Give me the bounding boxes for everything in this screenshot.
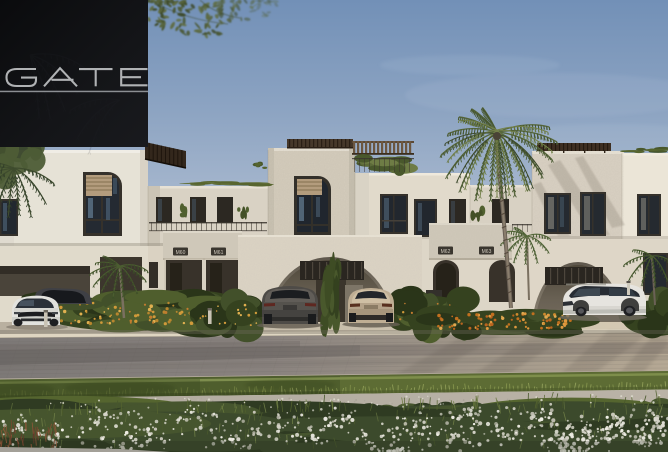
svg-text:M63: M63: [482, 249, 492, 255]
svg-text:M62: M62: [441, 249, 451, 255]
svg-text:M60: M60: [176, 250, 186, 256]
svg-text:M61: M61: [214, 250, 224, 256]
